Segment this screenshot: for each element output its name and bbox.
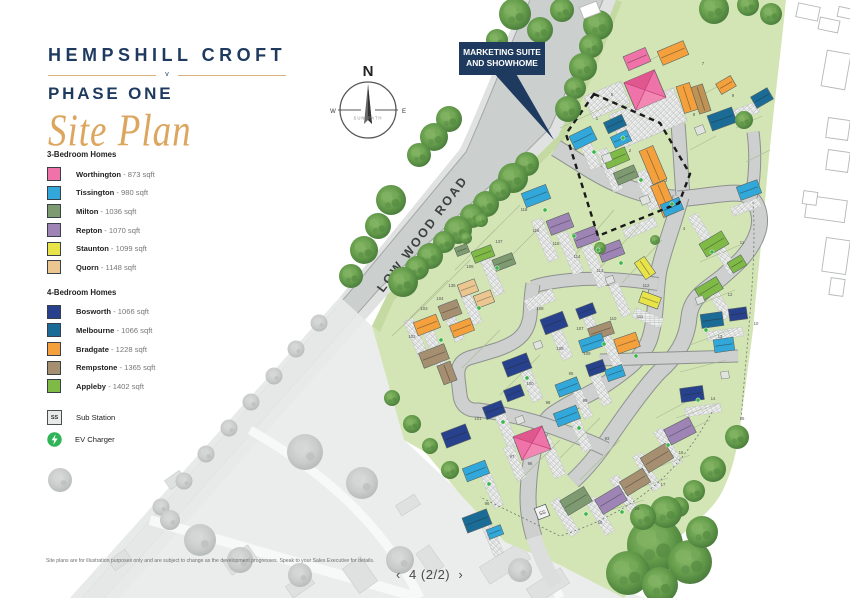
svg-text:107: 107 bbox=[576, 326, 584, 331]
svg-text:137: 137 bbox=[495, 239, 503, 244]
svg-text:99: 99 bbox=[583, 398, 588, 403]
svg-text:110: 110 bbox=[610, 316, 617, 321]
svg-text:97: 97 bbox=[510, 454, 515, 459]
svg-text:18: 18 bbox=[635, 506, 640, 511]
svg-text:E: E bbox=[402, 109, 406, 115]
svg-text:93: 93 bbox=[605, 436, 610, 441]
svg-text:19: 19 bbox=[598, 520, 603, 525]
svg-text:116: 116 bbox=[533, 228, 540, 233]
svg-text:108: 108 bbox=[556, 346, 564, 351]
svg-text:103: 103 bbox=[420, 306, 428, 311]
svg-text:17: 17 bbox=[661, 482, 666, 487]
svg-text:96: 96 bbox=[528, 461, 533, 466]
svg-text:113: 113 bbox=[597, 268, 604, 273]
svg-text:112: 112 bbox=[643, 283, 650, 288]
svg-text:15: 15 bbox=[740, 416, 745, 421]
svg-text:111: 111 bbox=[637, 314, 644, 319]
svg-text:114: 114 bbox=[574, 254, 581, 259]
svg-text:135: 135 bbox=[448, 283, 456, 288]
svg-text:115: 115 bbox=[553, 241, 560, 246]
svg-text:SUN PATH: SUN PATH bbox=[353, 116, 382, 121]
svg-text:102: 102 bbox=[408, 334, 416, 339]
svg-text:96: 96 bbox=[485, 501, 490, 506]
svg-text:108: 108 bbox=[536, 306, 544, 311]
svg-text:101: 101 bbox=[474, 416, 482, 421]
svg-text:N: N bbox=[363, 63, 374, 80]
svg-text:118: 118 bbox=[521, 207, 528, 212]
svg-text:95: 95 bbox=[569, 371, 574, 376]
svg-text:11: 11 bbox=[740, 240, 745, 245]
svg-text:104: 104 bbox=[436, 296, 444, 301]
svg-text:13: 13 bbox=[718, 334, 723, 339]
svg-text:98: 98 bbox=[546, 400, 551, 405]
svg-text:12: 12 bbox=[728, 292, 733, 297]
svg-text:10: 10 bbox=[754, 321, 759, 326]
svg-text:109: 109 bbox=[583, 351, 591, 356]
svg-text:W: W bbox=[330, 109, 336, 115]
svg-text:16: 16 bbox=[679, 450, 684, 455]
svg-text:14: 14 bbox=[711, 396, 716, 401]
svg-text:106: 106 bbox=[466, 264, 474, 269]
svg-text:100: 100 bbox=[526, 381, 534, 386]
